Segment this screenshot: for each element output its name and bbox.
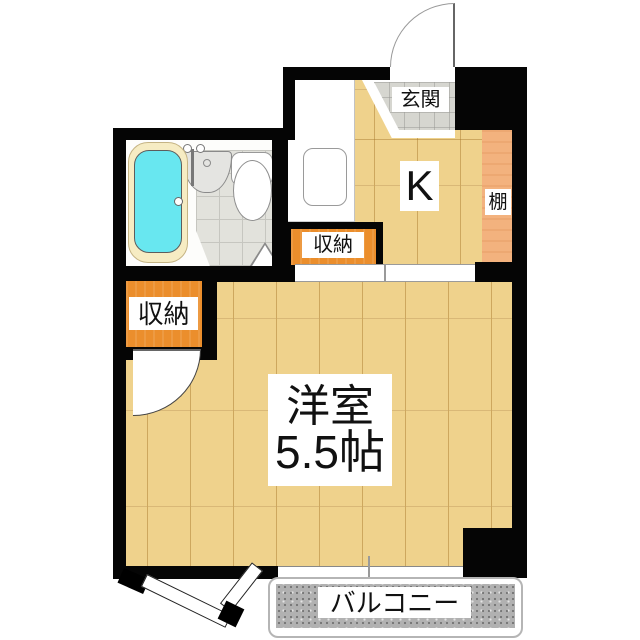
- faucet-stem: [191, 149, 194, 186]
- sink-drain: [203, 159, 211, 167]
- shelf-label-text: 棚: [488, 193, 507, 212]
- wall-top: [283, 67, 390, 80]
- bathtub-knob: [174, 197, 183, 206]
- kitchen-floor-seam: [355, 139, 482, 140]
- floor-plan: 玄関 K 棚 収納 収納 洋室 5.5帖 バルコニー: [0, 0, 640, 640]
- sash-leaf-long: [141, 574, 232, 628]
- room-label: 洋室 5.5帖: [268, 374, 392, 486]
- kitchen-label: K: [400, 161, 439, 211]
- entrance-label: 玄関: [392, 87, 449, 112]
- balcony-label-text: バルコニー: [330, 590, 459, 616]
- toilet-bowl: [233, 160, 272, 221]
- balcony-label: バルコニー: [318, 587, 471, 618]
- storage-upper-label-text: 収納: [313, 235, 353, 255]
- room-size-text: 5.5帖: [275, 429, 385, 475]
- shelf-label: 棚: [485, 189, 511, 215]
- kitchen-sink: [303, 148, 347, 206]
- wall-step-bottom-right: [463, 528, 512, 579]
- entrance-door-arc: [390, 3, 455, 67]
- room-name-text: 洋室: [286, 385, 374, 429]
- entrance-label-text: 玄関: [401, 90, 441, 110]
- wall-bath-top: [113, 128, 288, 140]
- storage-lower-label: 収納: [129, 297, 198, 330]
- storage-lower-label-text: 収納: [137, 301, 189, 327]
- kitchen-label-text: K: [405, 165, 433, 207]
- wall-right: [512, 67, 527, 578]
- entrance-door-gap: [390, 67, 455, 80]
- partition-tick: [384, 264, 386, 282]
- wall-band-right: [475, 262, 512, 282]
- faucet-handle-right: [196, 144, 205, 153]
- storage-upper-label: 収納: [302, 232, 364, 258]
